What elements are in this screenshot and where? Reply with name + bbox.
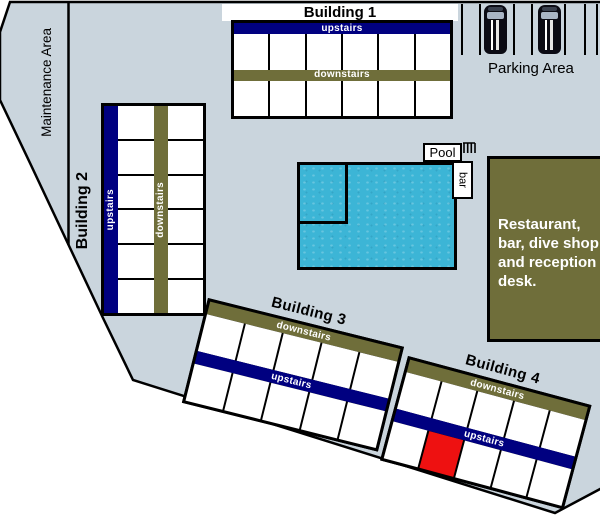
- car-windshield: [541, 12, 558, 19]
- maintenance-area-label: Maintenance Area: [33, 12, 59, 152]
- room-cell: [168, 210, 204, 243]
- upstairs-label: upstairs: [106, 189, 116, 230]
- restaurant-text-line: bar, dive shop: [498, 234, 600, 253]
- car-hood: [542, 7, 557, 11]
- room-cell: [270, 81, 304, 117]
- room-cell: [168, 176, 204, 209]
- room-cell: [234, 34, 268, 70]
- room-cell: [416, 81, 450, 117]
- building-2-upstairs-strip: upstairs: [104, 106, 118, 313]
- car-hood: [488, 7, 503, 11]
- building-1-downstairs-strip: downstairs: [234, 70, 450, 81]
- room-cell: [343, 34, 377, 70]
- car-stripe: [496, 20, 499, 50]
- room-cell: [527, 460, 571, 506]
- building-2: upstairs downstairs: [101, 103, 206, 316]
- room-cell: [416, 34, 450, 70]
- room-cell: [262, 383, 308, 429]
- building-2-downstairs-column: [168, 106, 204, 313]
- building-2-title: Building 2: [70, 160, 96, 262]
- room-cell: [270, 34, 304, 70]
- room-cell: [186, 364, 232, 410]
- maintenance-area-text: Maintenance Area: [39, 28, 54, 137]
- room-cell: [307, 34, 341, 70]
- room-cell: [379, 34, 413, 70]
- car-stripe: [545, 20, 547, 50]
- room-cell: [224, 373, 270, 419]
- room-cell: [307, 81, 341, 117]
- restaurant-text-line: and reception: [498, 253, 600, 272]
- room-cell: [118, 106, 154, 139]
- room-cell: [168, 141, 204, 174]
- parking-area-label: Parking Area: [488, 60, 574, 77]
- car-stripe: [491, 20, 493, 50]
- restaurant-text-line: desk.: [498, 272, 600, 291]
- building-1-upstairs-strip: upstairs: [234, 23, 450, 34]
- room-cell: [168, 106, 204, 139]
- room-cell: [301, 392, 347, 438]
- room-cell: [168, 245, 204, 278]
- resort-site-map: { "labels": { "maintenance": "Maintenanc…: [0, 0, 600, 521]
- room-cell: [118, 245, 154, 278]
- building-1-downstairs-row: [234, 81, 450, 117]
- building-1-title: Building 1: [304, 4, 377, 21]
- building-2-downstairs-strip: downstairs: [154, 106, 168, 313]
- car-icon: [538, 5, 561, 54]
- pool-label: Pool: [423, 143, 462, 162]
- building-1: upstairs downstairs: [231, 20, 453, 119]
- building-1-upstairs-row: [234, 34, 450, 70]
- room-cell: [379, 81, 413, 117]
- room-cell: [168, 280, 204, 313]
- building-1-label-plate: Building 1: [222, 4, 458, 21]
- room-cell: [118, 141, 154, 174]
- car-windshield: [487, 12, 504, 19]
- pool-bar-label: bar: [452, 161, 473, 199]
- room-cell: [339, 402, 385, 448]
- room-cell: [118, 210, 154, 243]
- car-icon: [484, 5, 507, 54]
- building-2-upstairs-column: [118, 106, 154, 313]
- restaurant-text-line: Restaurant,: [498, 215, 600, 234]
- upstairs-label: upstairs: [321, 24, 362, 34]
- downstairs-label: downstairs: [314, 70, 370, 80]
- room-cell: [118, 280, 154, 313]
- room-cell: [343, 81, 377, 117]
- room-cell: [118, 176, 154, 209]
- downstairs-label: downstairs: [156, 182, 166, 238]
- swimming-pool: [297, 162, 457, 270]
- room-cell: [234, 81, 268, 117]
- pool-shallow-section: [300, 165, 348, 224]
- pool-steps-icon: [462, 142, 476, 155]
- restaurant-block: Restaurant, bar, dive shop and reception…: [487, 156, 600, 342]
- car-stripe: [550, 20, 553, 50]
